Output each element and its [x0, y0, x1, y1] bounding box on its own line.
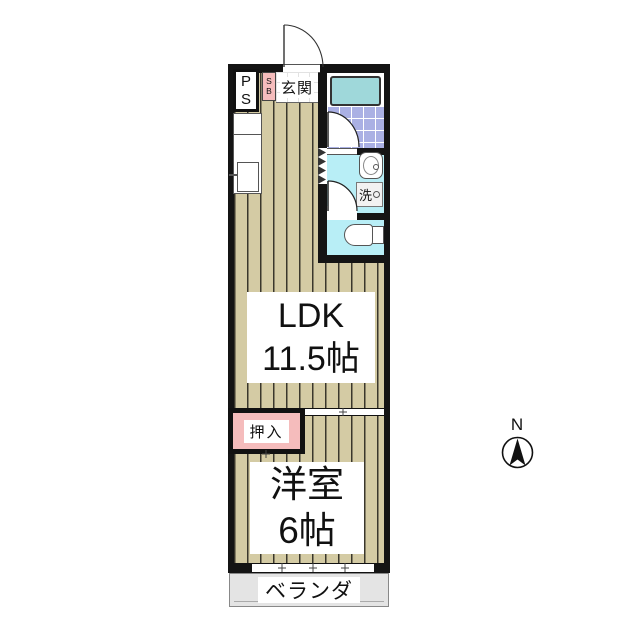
- bathroom-door-opening: [327, 148, 357, 155]
- bathroom-door-swing: [326, 111, 361, 149]
- closet-label: 押入: [244, 420, 288, 443]
- laundry-drain-dot: [373, 191, 380, 198]
- kitchen-faucet: [229, 174, 238, 176]
- vanity-sink: [359, 152, 383, 179]
- shoe-box: S B: [262, 72, 276, 101]
- entrance-door-swing: [280, 23, 324, 69]
- laundry-label: 洗: [359, 185, 372, 204]
- pipe-space: P S: [233, 69, 259, 112]
- folding-door-zigzag-icon: [318, 148, 327, 184]
- ldk-size: 11.5帖: [262, 338, 360, 381]
- western-room-size: 6帖: [278, 508, 336, 554]
- counter-divider: [233, 134, 262, 135]
- western-room-name: 洋室: [270, 462, 344, 508]
- compass-icon: [500, 434, 536, 472]
- western-room-label: 洋室 6帖: [250, 462, 364, 554]
- entrance-label: 玄関: [280, 77, 314, 98]
- north-letter: N: [511, 415, 523, 435]
- compass-north-label: N: [503, 415, 531, 435]
- ldk-label: LDK 11.5帖: [247, 292, 375, 383]
- kitchen-sink: [237, 162, 259, 192]
- toilet-bowl: [344, 224, 373, 246]
- ldk-name: LDK: [278, 295, 344, 338]
- wall-right: [384, 64, 390, 573]
- entrance-area: 玄関: [276, 72, 318, 103]
- pipe-space-label-line1: P: [241, 73, 251, 90]
- balcony-sliding-window: [252, 563, 374, 573]
- closet: 押入: [228, 408, 305, 454]
- floorplan-canvas: 洗 P S S B 玄関 LDK 11.5帖 押入: [0, 0, 640, 640]
- bathtub: [330, 76, 381, 106]
- pipe-space-label-line2: S: [241, 91, 251, 108]
- shoe-box-label-line2: B: [266, 87, 272, 96]
- washroom-door-swing: [326, 180, 359, 213]
- sliding-partition: [305, 408, 384, 416]
- laundry-machine-space: 洗: [356, 182, 383, 207]
- vanity-drain: [373, 164, 379, 170]
- balcony-label: ベランダ: [258, 577, 360, 603]
- wall-service-bottom: [318, 255, 390, 263]
- balcony-label-text: ベランダ: [265, 575, 353, 605]
